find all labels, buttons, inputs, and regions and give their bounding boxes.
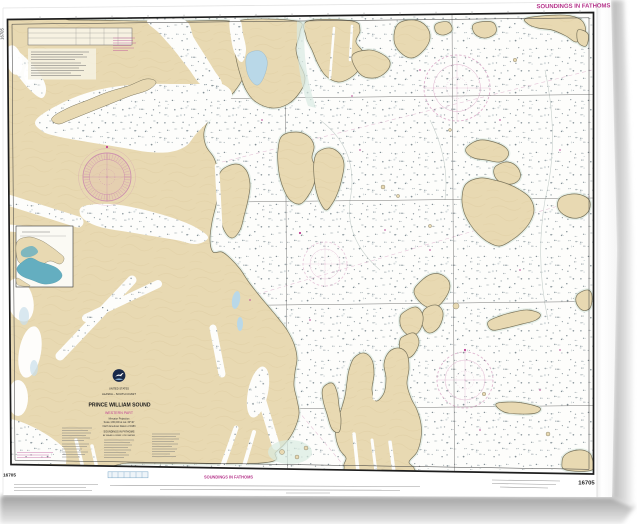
svg-text:16705: 16705 [3, 473, 16, 478]
svg-text:UNITED STATES: UNITED STATES [109, 387, 129, 391]
svg-text:PRINCE WILLIAM SOUND: PRINCE WILLIAM SOUND [89, 403, 151, 409]
svg-text:SOUNDINGS IN FATHOMS: SOUNDINGS IN FATHOMS [104, 430, 135, 433]
svg-text:16705: 16705 [578, 481, 595, 487]
svg-text:ALASKA – SOUTH COAST: ALASKA – SOUTH COAST [102, 392, 136, 396]
svg-text:SOUNDINGS IN FATHOMS: SOUNDINGS IN FATHOMS [204, 475, 253, 480]
svg-text:Scale 1:80,000 at Lat. 60°40′: Scale 1:80,000 at Lat. 60°40′ [104, 421, 135, 424]
svg-text:North American Datum of 1983: North American Datum of 1983 [103, 425, 136, 428]
svg-text:SOUNDINGS IN FATHOMS: SOUNDINGS IN FATHOMS [536, 3, 610, 10]
svg-text:AT MEAN LOWER LOW WATER: AT MEAN LOWER LOW WATER [103, 434, 135, 437]
svg-text:WESTERN PART: WESTERN PART [105, 411, 133, 415]
svg-text:16705: 16705 [0, 28, 5, 40]
svg-text:Mercator Projection: Mercator Projection [109, 418, 130, 421]
